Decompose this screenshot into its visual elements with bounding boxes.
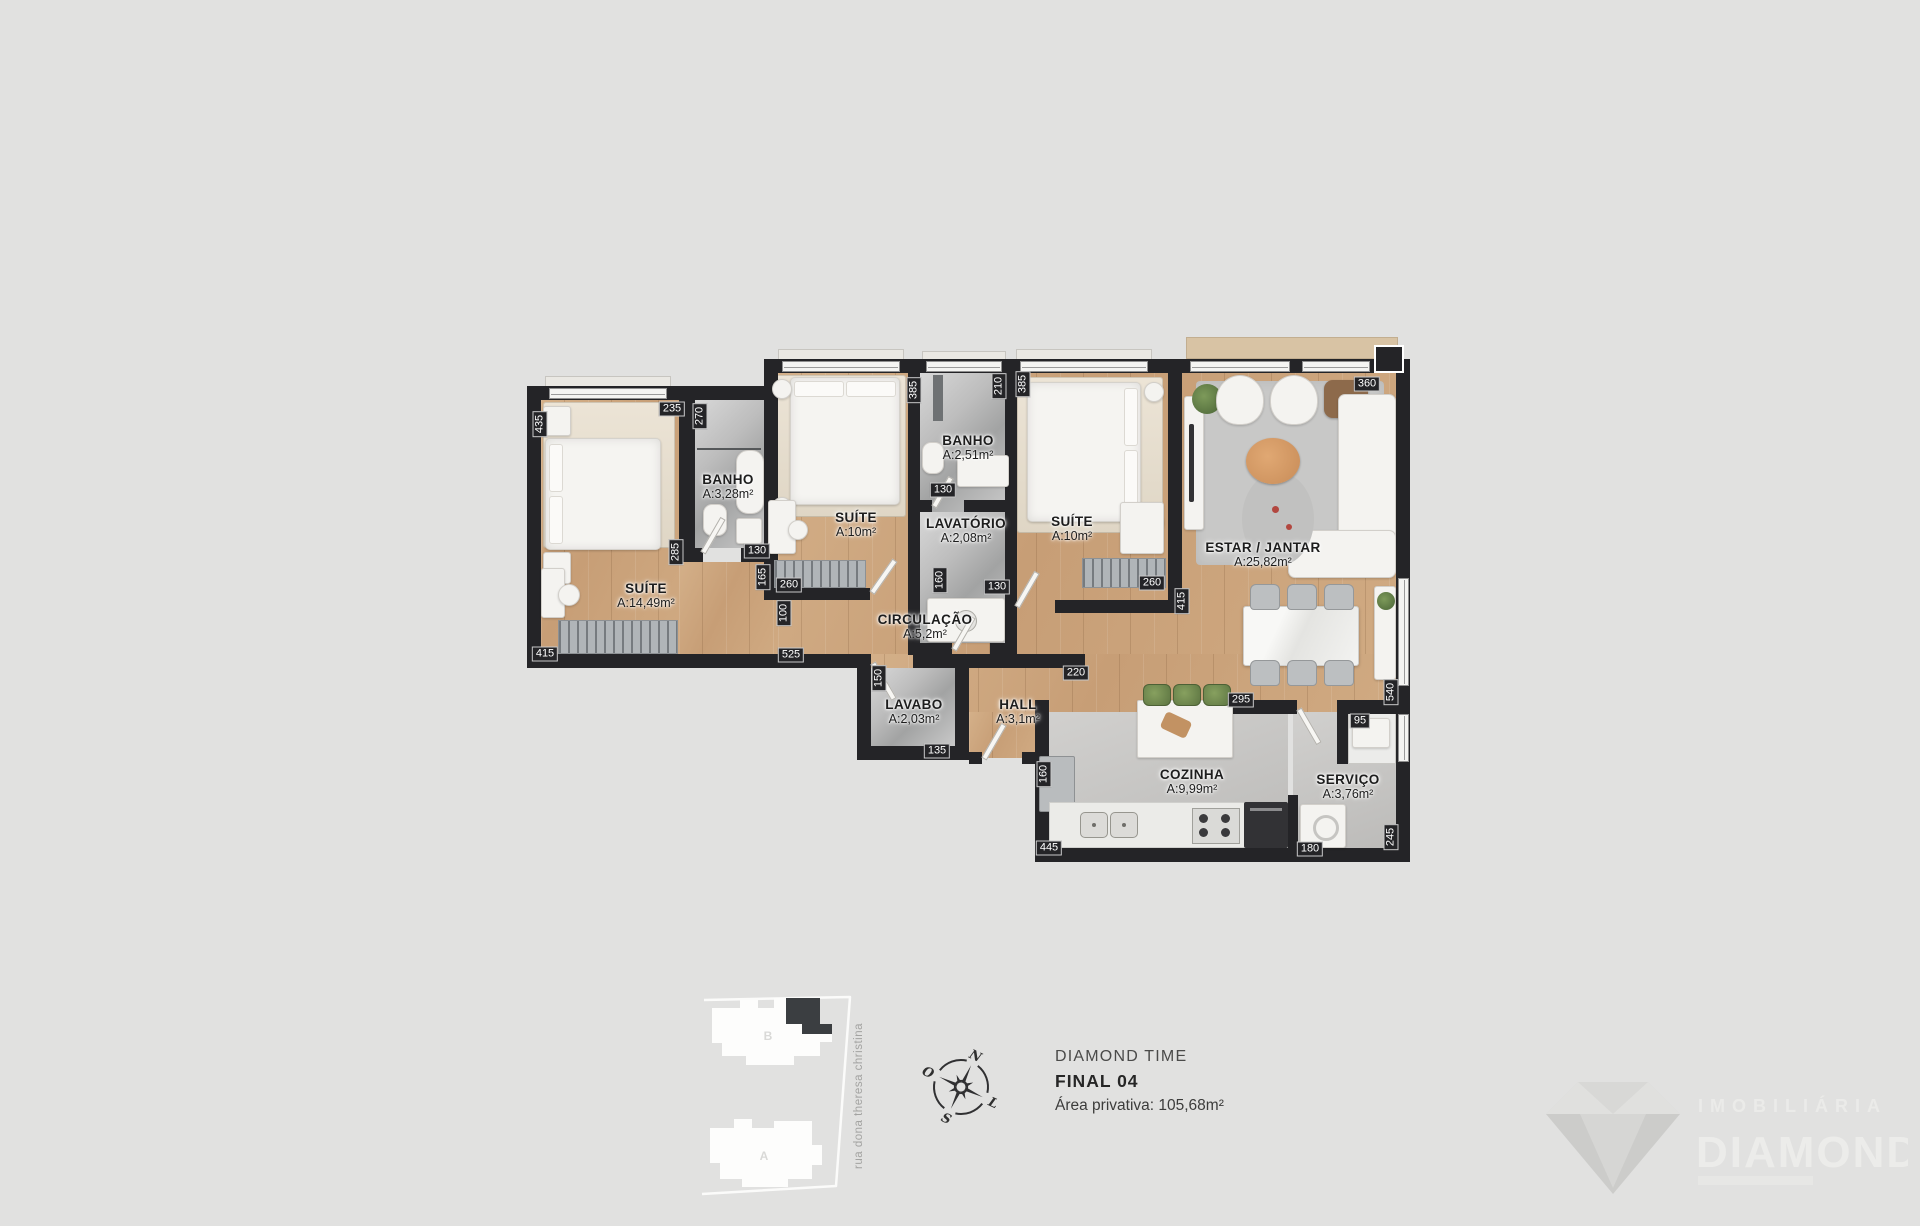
- wall-room95-left: [1337, 714, 1348, 764]
- burner: [1199, 814, 1208, 823]
- room-label-hall: HALLA:3,1m²: [996, 697, 1040, 727]
- oven-handle: [1250, 808, 1282, 811]
- vanity-banho1: [736, 518, 762, 544]
- stool: [1143, 684, 1171, 706]
- room-name: COZINHA: [1160, 767, 1224, 782]
- dimension-label: 150: [872, 665, 887, 691]
- dimension-label: 260: [776, 578, 802, 593]
- room-label-banho-1: BANHOA:3,28m²: [702, 472, 754, 502]
- dimension-label: 210: [992, 373, 1007, 399]
- dining-chair: [1287, 584, 1317, 610]
- nightstand: [1144, 382, 1164, 402]
- room-name: SUÍTE: [1051, 514, 1093, 529]
- dimension-label: 435: [533, 411, 548, 437]
- wall-suite3-bottom-b: [1055, 600, 1182, 613]
- dimension-label: 245: [1384, 824, 1399, 850]
- decor-flowers: [1272, 506, 1279, 513]
- dimension-label: 160: [1037, 761, 1052, 787]
- compass-west-label: O: [919, 1064, 936, 1083]
- stool: [1203, 684, 1231, 706]
- oven: [1244, 802, 1288, 848]
- balcony-ledge: [1186, 337, 1398, 359]
- room-area: A:25,82m²: [1205, 555, 1320, 570]
- pillow: [549, 444, 563, 492]
- dimension-label: 445: [1036, 841, 1062, 856]
- tv-sideboard: [1184, 396, 1204, 530]
- window-dining-right: [1398, 578, 1409, 686]
- wall-suite3-bottom-a: [1005, 600, 1015, 613]
- dimension-label: 295: [1228, 693, 1254, 708]
- room-name: BANHO: [702, 472, 754, 487]
- logo-line1: IMOBILIÁRIA: [1698, 1095, 1887, 1116]
- wall-hall-bottom-a: [969, 752, 982, 764]
- room-label-servico: SERVIÇOA:3,76m²: [1316, 772, 1379, 802]
- room-label-circulacao: CIRCULAÇÃOA:5,2m²: [878, 612, 973, 642]
- dimension-label: 165: [756, 564, 771, 590]
- dimension-label: 285: [669, 539, 684, 565]
- dimension-label: 130: [984, 580, 1010, 595]
- dimension-label: 385: [907, 377, 922, 403]
- street-name-label: rua dona theresa christina: [853, 1023, 865, 1169]
- room-area: A:10m²: [1051, 529, 1093, 544]
- toilet: [922, 442, 944, 474]
- room-label-banho-2: BANHOA:2,51m²: [942, 433, 994, 463]
- room-label-suite-2: SUÍTEA:10m²: [835, 510, 877, 540]
- shower-wall: [933, 375, 943, 421]
- stool: [1173, 684, 1201, 706]
- room-name: CIRCULAÇÃO: [878, 612, 973, 627]
- tv: [1189, 424, 1194, 502]
- sofa: [1338, 394, 1396, 546]
- wall-suite3-living: [1168, 373, 1182, 613]
- room-name: HALL: [996, 697, 1040, 712]
- room-name: BANHO: [942, 433, 994, 448]
- floor-plan-page: SUÍTEA:14,49m²BANHOA:3,28m²SUÍTEA:10m²BA…: [0, 0, 1920, 1226]
- pillow: [1124, 388, 1138, 446]
- dimension-label: 180: [1297, 842, 1323, 857]
- burner: [1221, 814, 1230, 823]
- dimension-label: 160: [933, 567, 948, 593]
- compass-south-label: S: [939, 1110, 954, 1128]
- unit-label: FINAL 04: [1055, 1071, 1224, 1092]
- wall-lavabo-bottom: [857, 746, 969, 760]
- building-b-label: B: [764, 1029, 773, 1043]
- room-name: LAVATÓRIO: [926, 516, 1006, 531]
- decor-flowers: [1286, 524, 1292, 530]
- wall-lavabo-left: [857, 654, 871, 758]
- logo-tagline-bar: [1698, 1176, 1813, 1185]
- wall-lavabo-right: [955, 654, 969, 758]
- room-name: SUÍTE: [835, 510, 877, 525]
- wall-banho2-bottom-b: [964, 500, 1017, 512]
- room-label-lavatorio: LAVATÓRIOA:2,08m²: [926, 516, 1006, 546]
- pillow: [846, 381, 896, 397]
- dining-chair: [1324, 660, 1354, 686]
- coffee-table: [1246, 438, 1300, 484]
- dining-chair: [1250, 584, 1280, 610]
- dimension-label: 130: [930, 483, 956, 498]
- wall-corridor-bottom-a: [527, 654, 871, 668]
- room-area: A:3,76m²: [1316, 787, 1379, 802]
- dimension-label: 270: [693, 403, 708, 429]
- wall-kitchen-bottom: [1035, 848, 1410, 862]
- wardrobe-suite1: [558, 620, 678, 654]
- desk-suite3: [1120, 502, 1164, 554]
- room-name: LAVABO: [885, 697, 942, 712]
- compass-rose: N S O L: [916, 1042, 1006, 1132]
- dimension-label: 100: [777, 600, 792, 626]
- room-area: A:3,28m²: [702, 487, 754, 502]
- window-banho2: [926, 361, 1002, 372]
- dining-chair: [1287, 660, 1317, 686]
- burner: [1221, 828, 1230, 837]
- window-suite1: [549, 388, 667, 399]
- burner: [1199, 828, 1208, 837]
- room-name: SERVIÇO: [1316, 772, 1379, 787]
- dimension-label: 385: [1016, 371, 1031, 397]
- room-area: A:3,1m²: [996, 712, 1040, 727]
- room-area: A:2,03m²: [885, 712, 942, 727]
- dimension-label: 415: [532, 647, 558, 662]
- wall-lavatorio-bottom-b: [990, 643, 1017, 655]
- room-label-cozinha: COZINHAA:9,99m²: [1160, 767, 1224, 797]
- room-area: A:14,49m²: [617, 596, 675, 611]
- room-area: A:10m²: [835, 525, 877, 540]
- washer-door: [1313, 815, 1339, 841]
- window-suite3: [1020, 361, 1148, 372]
- plant: [1377, 592, 1395, 610]
- dimension-label: 220: [1063, 666, 1089, 681]
- dimension-label: 135: [924, 744, 950, 759]
- pillow: [1124, 450, 1138, 508]
- dining-chair: [1324, 584, 1354, 610]
- wall-corridor-bottom-b: [913, 654, 1085, 668]
- wall-corner-column: [1374, 345, 1404, 373]
- dimension-label: 540: [1384, 679, 1399, 705]
- logo-line2: DIAMOND: [1696, 1128, 1908, 1177]
- project-name: DIAMOND TIME: [1055, 1048, 1224, 1066]
- window-living-a: [1190, 361, 1290, 372]
- room-label-suite-1: SUÍTEA:14,49m²: [617, 581, 675, 611]
- kitchen-sink: [1110, 812, 1138, 838]
- wall-cozinha-servico: [1288, 795, 1298, 848]
- room-label-estar-jantar: ESTAR / JANTARA:25,82m²: [1205, 540, 1320, 570]
- compass-north-label: N: [966, 1047, 985, 1067]
- room-label-lavabo: LAVABOA:2,03m²: [885, 697, 942, 727]
- room-name: SUÍTE: [617, 581, 675, 596]
- dining-chair: [1250, 660, 1280, 686]
- room-label-suite-3: SUÍTEA:10m²: [1051, 514, 1093, 544]
- compass-east-label: L: [985, 1094, 1001, 1112]
- dimension-label: 95: [1350, 714, 1370, 729]
- room-area: A:2,51m²: [942, 448, 994, 463]
- wall-lavatorio-bottom-a: [908, 643, 952, 655]
- window-servico-right: [1398, 714, 1409, 762]
- room-area: A:9,99m²: [1160, 782, 1224, 797]
- site-plan: B A rua dona theresa christina: [690, 988, 900, 1203]
- desk-chair: [558, 584, 580, 606]
- pillow: [794, 381, 844, 397]
- armchair: [1270, 375, 1318, 425]
- kitchen-sink: [1080, 812, 1108, 838]
- building-a-label: A: [760, 1149, 769, 1163]
- diamond-icon: [1546, 1082, 1680, 1194]
- dimension-label: 525: [778, 648, 804, 663]
- window-living-b: [1302, 361, 1370, 372]
- room-area: A:2,08m²: [926, 531, 1006, 546]
- wall-banho2-bottom-a: [908, 500, 932, 512]
- room-name: ESTAR / JANTAR: [1205, 540, 1320, 555]
- stove: [1192, 808, 1240, 844]
- dimension-label: 260: [1139, 576, 1165, 591]
- title-block: DIAMOND TIME FINAL 04 Área privativa: 10…: [1055, 1048, 1224, 1115]
- realtor-logo: IMOBILIÁRIA DIAMOND: [1528, 1072, 1908, 1202]
- dimension-label: 235: [659, 402, 685, 417]
- nightstand: [772, 379, 792, 399]
- armchair: [1216, 375, 1264, 425]
- private-area-label: Área privativa: 105,68m²: [1055, 1097, 1224, 1115]
- pillow: [549, 496, 563, 544]
- room-area: A:5,2m²: [878, 627, 973, 642]
- dimension-label: 130: [744, 544, 770, 559]
- dining-table: [1243, 606, 1359, 666]
- window-suite2: [782, 361, 900, 372]
- dimension-label: 360: [1354, 377, 1380, 392]
- dimension-label: 415: [1175, 588, 1190, 614]
- desk-chair: [788, 520, 808, 540]
